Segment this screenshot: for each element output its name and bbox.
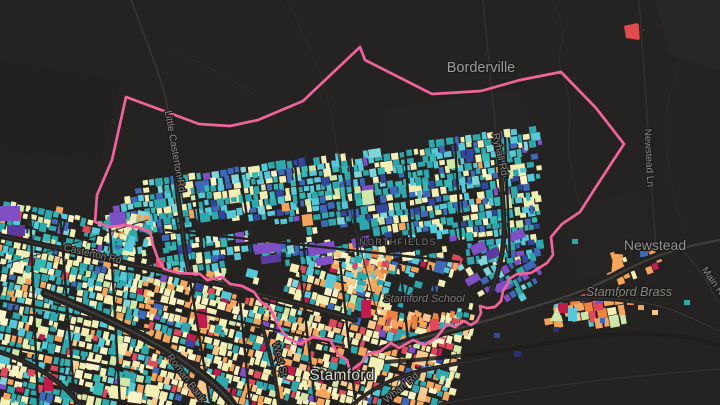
svg-text:Borderville: Borderville — [447, 60, 516, 76]
svg-text:Stamford Brass: Stamford Brass — [586, 285, 672, 299]
svg-text:Newstead: Newstead — [624, 237, 686, 253]
svg-text:Stamford: Stamford — [309, 367, 374, 384]
svg-text:Stamford School: Stamford School — [383, 293, 465, 305]
svg-text:NORTHFIELDS: NORTHFIELDS — [359, 237, 437, 247]
